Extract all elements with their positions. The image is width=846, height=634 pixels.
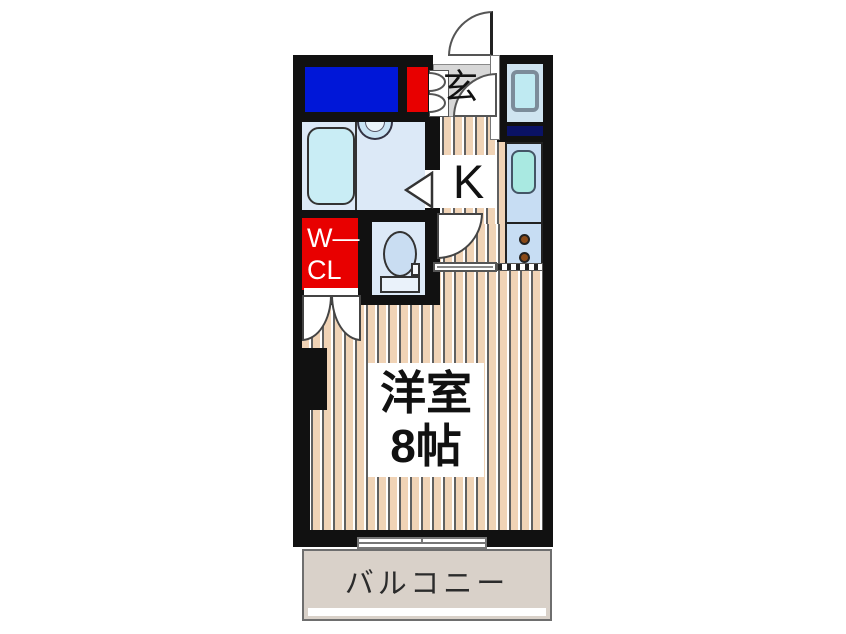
bathtub-icon <box>307 127 355 205</box>
kitchen-label: K <box>440 155 497 208</box>
floorplan-canvas: 玄 W― CL K 洋室 8帖 バルコニー <box>0 0 846 634</box>
pillar <box>302 348 327 410</box>
balcony-label: バルコニー <box>302 560 552 602</box>
sliding-window-center-tick <box>421 537 423 544</box>
kitchen-counter-divider <box>505 222 543 224</box>
toilet-tank-icon <box>380 276 420 293</box>
walk-in-closet: W― CL <box>302 218 358 290</box>
entrance-label: 玄 <box>443 70 487 110</box>
bathroom-divider <box>355 122 357 210</box>
storage-box-blue <box>305 67 398 112</box>
balcony-edge-strip <box>308 608 546 616</box>
entrance-door-swing-icon <box>448 11 493 56</box>
main-room-label: 洋室 8帖 <box>368 363 484 477</box>
sliding-door-panel-line <box>437 266 493 268</box>
washing-machine-pan-icon <box>511 70 539 112</box>
walk-in-closet-label-line1: W― <box>307 223 359 253</box>
stove-burner-icon <box>519 234 530 245</box>
counter-edge-strip <box>507 126 543 136</box>
wall-left-lower <box>302 410 310 534</box>
sliding-door-track <box>497 263 543 271</box>
storage-box-red <box>407 67 428 112</box>
bathroom-folding-door-icon <box>404 171 434 209</box>
walk-in-closet-label-line2: CL <box>307 255 342 285</box>
main-room-name: 洋室 <box>380 367 472 420</box>
kitchen-sink-icon <box>511 150 536 194</box>
stove-burner-icon <box>519 252 530 263</box>
main-room-size: 8帖 <box>390 420 462 473</box>
toilet-handle-icon <box>411 263 420 276</box>
